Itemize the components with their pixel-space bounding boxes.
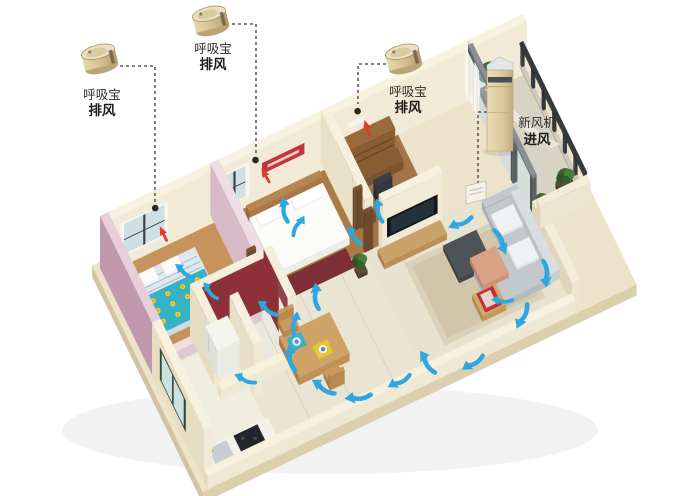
- fresh-air-label-line2: 进风: [524, 132, 552, 147]
- device1-label-line2: 排风: [89, 102, 116, 118]
- leader-line-device-1: [120, 66, 155, 202]
- device2-label-line2: 排风: [200, 56, 227, 72]
- device3-label-line2: 排风: [395, 99, 422, 115]
- device1-label-line1: 呼吸宝: [83, 88, 121, 102]
- device3-label-line1: 呼吸宝: [389, 85, 427, 99]
- ventilation-diagram: 呼吸宝 排风 呼吸宝 排风 呼吸宝 排风 新风机 进风: [0, 0, 700, 496]
- fresh-air-tower-icon: [483, 57, 517, 156]
- isometric-apartment: [62, 14, 637, 496]
- breathing-vent-device-icon: [80, 41, 120, 77]
- fresh-air-label-line1: 新风机: [518, 115, 556, 130]
- device2-label-line1: 呼吸宝: [194, 42, 232, 56]
- breathing-vent-device-icon: [191, 3, 231, 39]
- floorplan-illustration: 呼吸宝 排风 呼吸宝 排风 呼吸宝 排风 新风机 进风: [0, 0, 700, 496]
